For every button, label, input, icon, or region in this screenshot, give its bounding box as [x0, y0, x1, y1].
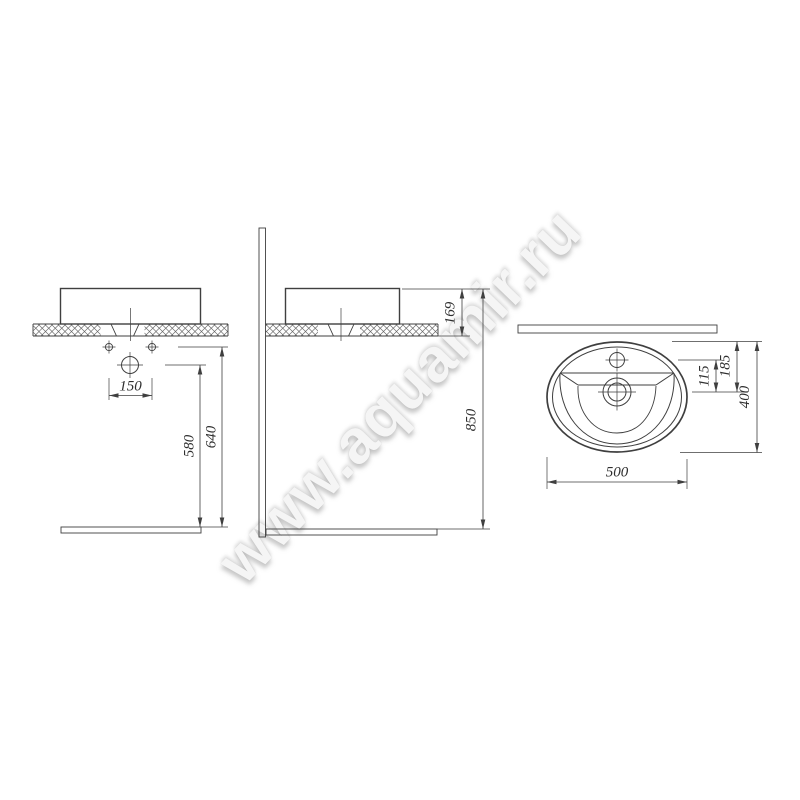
dim-label-rim-to-floor: 850	[464, 408, 480, 431]
side-counter-hatch-left	[266, 325, 318, 337]
side-counter-hatch-right	[360, 325, 438, 337]
mounting-hole-left-cross	[103, 341, 116, 354]
drawing-canvas: www.aquamir.ru	[0, 0, 800, 800]
dim-580: 580	[165, 365, 206, 527]
dim-label-faucet-to-drain: 115	[697, 365, 713, 387]
top-view: 115 185 400 500	[518, 325, 762, 489]
front-floor-strip	[61, 527, 201, 533]
dim-150: 150	[109, 378, 152, 400]
dim-label-width: 500	[606, 465, 629, 481]
drain-outlet-fitting	[111, 324, 139, 336]
technical-drawing: 150 580 640	[0, 0, 800, 800]
dim-label-rim-above-counter: 169	[443, 301, 459, 324]
front-floor	[61, 527, 228, 533]
dim-label-drain-to-floor: 580	[182, 434, 198, 457]
dim-label-holes-to-floor: 640	[204, 425, 220, 448]
counter-hatch-right	[145, 325, 229, 337]
siphon-outlet	[117, 352, 143, 378]
dim-850: 850	[464, 289, 484, 529]
mounting-hole-right-cross	[146, 341, 159, 354]
side-floor-strip	[266, 529, 437, 535]
basin-body-side	[286, 289, 400, 325]
dim-label-hole-spacing: 150	[119, 379, 142, 395]
counter-hatch-left	[34, 325, 101, 337]
mounting-holes	[103, 341, 159, 354]
wall	[259, 228, 266, 537]
dim-label-depth: 400	[737, 385, 753, 408]
dim-500: 500	[547, 457, 687, 489]
side-countertop	[266, 324, 439, 336]
side-floor	[266, 529, 490, 535]
top-wall-strip	[518, 325, 717, 333]
siphon-cross	[117, 352, 143, 378]
side-view: 169 850	[259, 228, 490, 537]
dim-label-back-to-drain: 185	[718, 354, 734, 377]
front-view: 150 580 640	[33, 289, 228, 534]
